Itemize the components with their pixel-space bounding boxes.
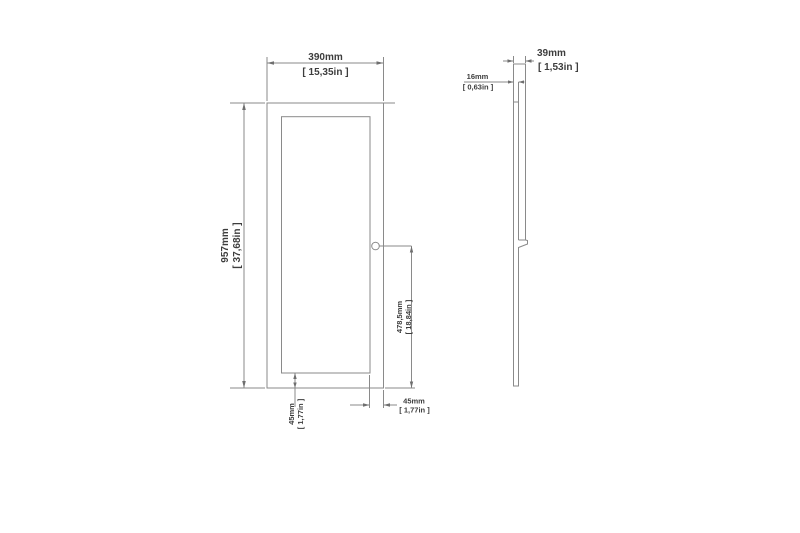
technical-drawing: 390mm [ 15,35in ] 957mm [ 37,68in ] 478,… bbox=[0, 0, 800, 533]
drawing-page: 390mm [ 15,35in ] 957mm [ 37,68in ] 478,… bbox=[0, 0, 800, 533]
arrow-right-icon bbox=[508, 80, 514, 83]
dim-depth-inch: [ 1,53in ] bbox=[538, 62, 579, 73]
knob-front bbox=[372, 242, 380, 250]
front-outer-frame bbox=[267, 103, 384, 388]
arrow-down-icon bbox=[293, 383, 296, 389]
side-profile-outline bbox=[514, 64, 528, 386]
dim-stile-mm: 45mm bbox=[403, 397, 425, 406]
dim-panel-inch: [ 0,63in ] bbox=[463, 83, 494, 92]
arrow-left-icon bbox=[526, 59, 532, 62]
arrow-up-icon bbox=[410, 246, 413, 253]
arrow-left-icon bbox=[384, 403, 391, 406]
dim-overall-height: 957mm [ 37,68in ] bbox=[220, 103, 265, 388]
arrow-right-icon bbox=[377, 61, 384, 65]
dim-panel-mm: 16mm bbox=[467, 72, 489, 81]
arrow-left-icon bbox=[267, 61, 274, 65]
dim-stile-inch: [ 1,77in ] bbox=[399, 406, 430, 415]
arrow-up-icon bbox=[242, 103, 246, 110]
dim-height-inch: [ 37,68in ] bbox=[232, 222, 243, 268]
dim-height-mm: 957mm bbox=[220, 228, 231, 263]
dim-handle-mm: 478,5mm bbox=[395, 301, 404, 333]
dim-depth-mm: 39mm bbox=[537, 48, 566, 59]
dim-handle-inch: [ 18,84in ] bbox=[404, 299, 413, 334]
dim-panel-thickness: 16mm [ 0,63in ] bbox=[463, 72, 525, 102]
dim-width-mm: 390mm bbox=[308, 52, 343, 63]
dim-rail-inch: [ 1,77in ] bbox=[296, 398, 305, 429]
dim-rail-mm: 45mm bbox=[287, 403, 296, 425]
arrow-right-icon bbox=[508, 59, 514, 62]
arrow-down-icon bbox=[242, 381, 246, 388]
arrow-right-icon bbox=[363, 403, 370, 406]
dim-handle-height: 478,5mm [ 18,84in ] bbox=[380, 246, 416, 388]
dim-width-inch: [ 15,35in ] bbox=[302, 67, 348, 78]
dim-bottom-rail: 45mm [ 1,77in ] bbox=[287, 373, 305, 429]
front-inner-panel bbox=[282, 117, 371, 373]
dim-overall-width: 390mm [ 15,35in ] bbox=[267, 52, 384, 101]
arrow-left-icon bbox=[519, 80, 525, 83]
front-view bbox=[267, 103, 395, 388]
dim-overall-depth: 39mm [ 1,53in ] bbox=[503, 48, 579, 73]
dim-right-stile: 45mm [ 1,77in ] bbox=[350, 375, 430, 415]
arrow-up-icon bbox=[293, 373, 296, 379]
arrow-down-icon bbox=[410, 382, 413, 389]
side-view bbox=[514, 64, 528, 386]
